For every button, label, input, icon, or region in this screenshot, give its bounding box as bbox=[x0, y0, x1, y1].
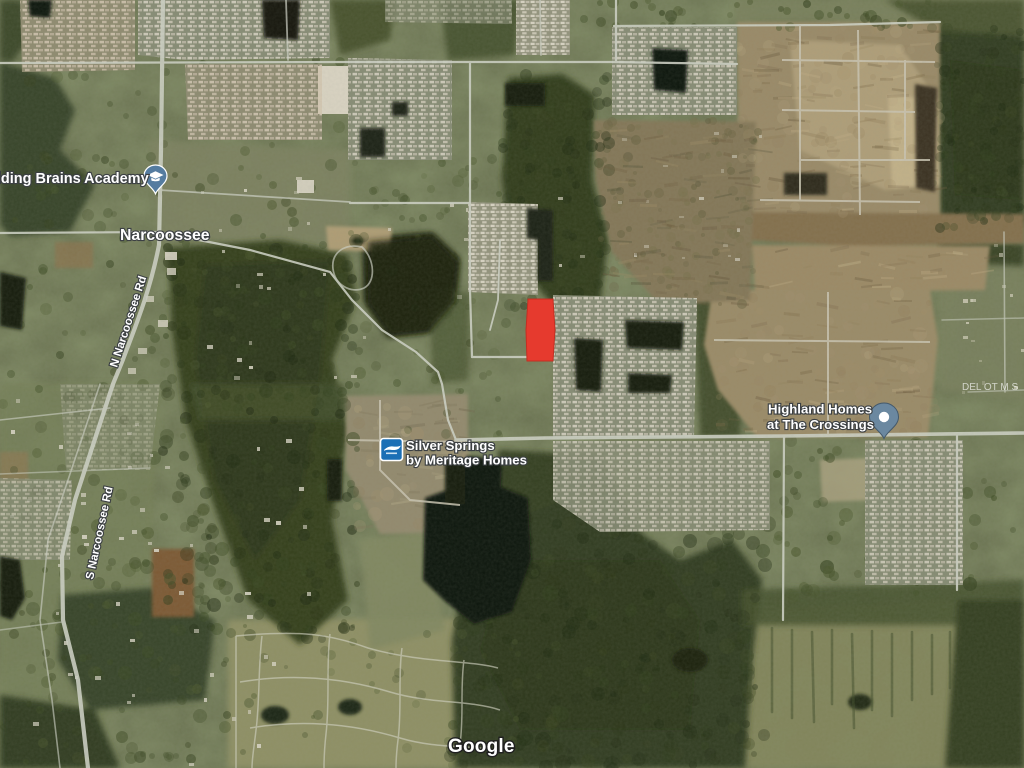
svg-text:DEL OT M S: DEL OT M S bbox=[962, 382, 1018, 393]
svg-text:Silver Springs: Silver Springs bbox=[406, 438, 495, 453]
svg-text:at The Crossings: at The Crossings bbox=[767, 417, 874, 432]
svg-text:Highland Homes: Highland Homes bbox=[768, 402, 872, 417]
svg-text:Google: Google bbox=[448, 736, 515, 757]
svg-text:uilding Brains Academy: uilding Brains Academy bbox=[0, 171, 149, 187]
svg-text:by Meritage Homes: by Meritage Homes bbox=[406, 453, 527, 468]
svg-text:Narcoossee: Narcoossee bbox=[120, 227, 210, 244]
